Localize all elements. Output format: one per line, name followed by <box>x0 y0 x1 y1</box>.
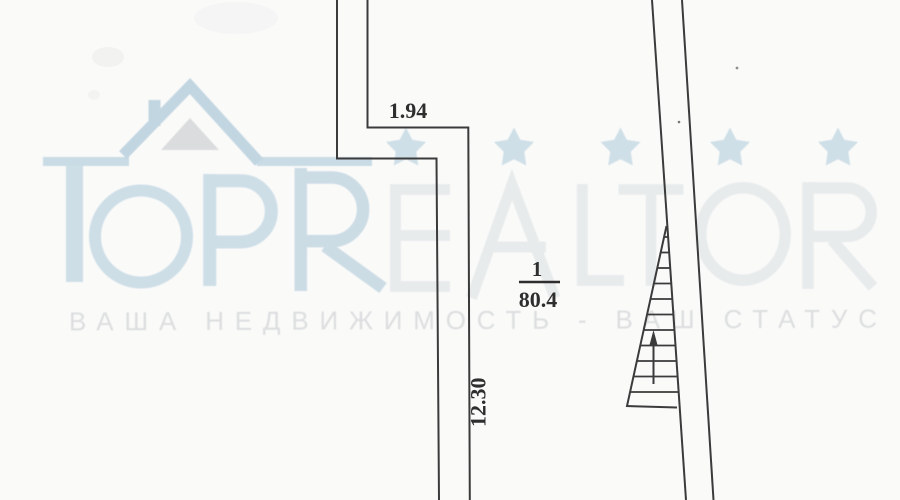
svg-text:1.94: 1.94 <box>389 98 428 123</box>
svg-text:1: 1 <box>532 257 543 281</box>
svg-text:12.30: 12.30 <box>466 378 491 428</box>
svg-text:80.4: 80.4 <box>519 287 558 312</box>
svg-text:ВАША НЕДВИЖИМОСТЬ - ВАШ СТАТУС: ВАША НЕДВИЖИМОСТЬ - ВАШ СТАТУС <box>69 304 888 337</box>
